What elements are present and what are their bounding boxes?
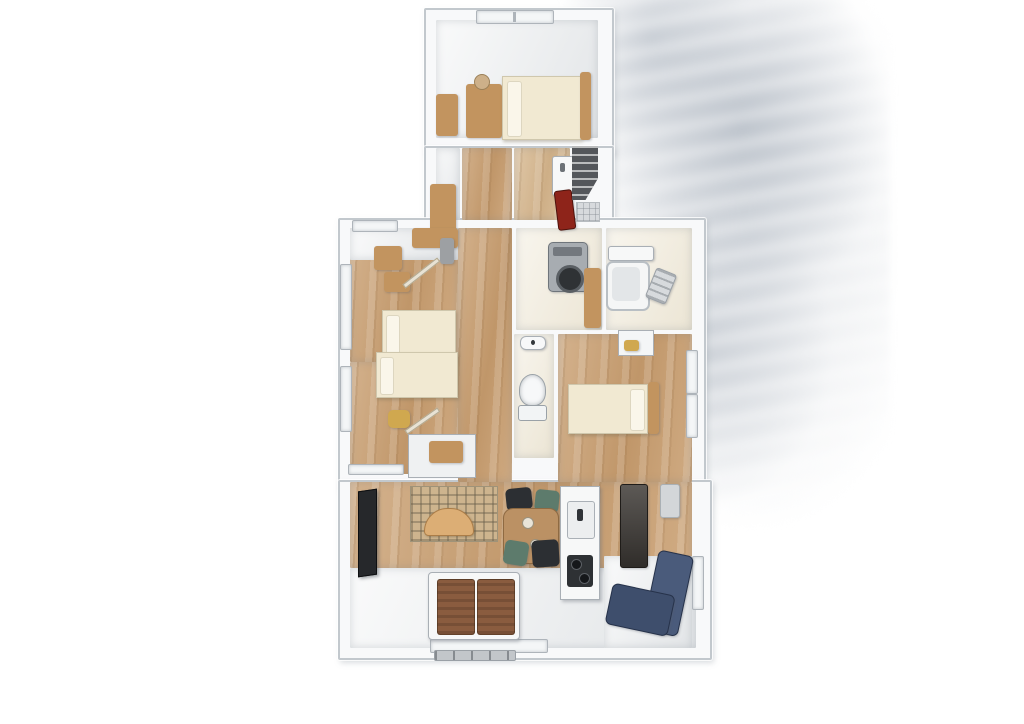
- closet-panel: [440, 238, 454, 264]
- tv: [358, 489, 377, 578]
- toilet-bowl: [519, 374, 546, 406]
- futon-mat: [477, 579, 515, 635]
- shelf: [584, 268, 601, 328]
- stove-burner: [579, 573, 590, 584]
- dresser-lamp: [474, 74, 490, 90]
- washer-lid: [556, 265, 584, 293]
- dresser: [466, 84, 502, 138]
- window-pane-divider: [513, 12, 516, 22]
- balcony-step: [434, 650, 516, 661]
- kitchen-counter: [560, 486, 600, 600]
- floor-upper-hallway: [462, 148, 512, 220]
- bathtub-inner: [612, 267, 640, 301]
- closet: [374, 246, 402, 270]
- bed-pillow: [380, 357, 394, 395]
- window-master-right-1: [686, 350, 698, 394]
- vanity-faucet: [560, 163, 565, 172]
- washing-machine: [548, 242, 588, 292]
- closet-shelf: [429, 441, 463, 463]
- tile-mat: [576, 202, 600, 222]
- bed-pillow: [507, 81, 522, 137]
- sliding-door-bedroom-west-lower: [348, 464, 404, 475]
- window-west-2: [340, 366, 352, 432]
- toilet: [518, 374, 546, 420]
- stove: [567, 555, 593, 587]
- stove-burner: [571, 559, 582, 570]
- closet: [408, 434, 476, 478]
- bed: [502, 76, 582, 140]
- vent-panel: [660, 484, 680, 518]
- basin-faucet: [531, 340, 535, 345]
- futon-platform: [428, 572, 520, 640]
- floorplan-render: [0, 0, 1024, 724]
- wood-mat: [436, 94, 458, 136]
- dining-chair: [531, 539, 560, 568]
- dining-chair: [502, 539, 529, 566]
- bathtub: [606, 261, 650, 311]
- window-north-top: [476, 10, 554, 24]
- stool: [624, 340, 639, 351]
- window-west-1: [340, 264, 352, 350]
- bed-headboard: [580, 72, 591, 140]
- bath-counter: [608, 246, 654, 261]
- bed-pillow: [630, 389, 645, 431]
- bed: [376, 352, 458, 398]
- toilet-tank: [518, 405, 547, 421]
- sink-faucet: [577, 509, 583, 521]
- window-master-right-2: [686, 394, 698, 438]
- bed: [568, 384, 648, 434]
- hand-basin: [520, 336, 546, 350]
- futon-mat: [437, 579, 475, 635]
- window-main-top: [352, 220, 398, 232]
- wood-mat: [430, 184, 456, 232]
- bed-headboard: [648, 382, 659, 434]
- stool: [388, 410, 410, 428]
- washer-panel: [553, 247, 582, 256]
- tableware: [522, 517, 534, 529]
